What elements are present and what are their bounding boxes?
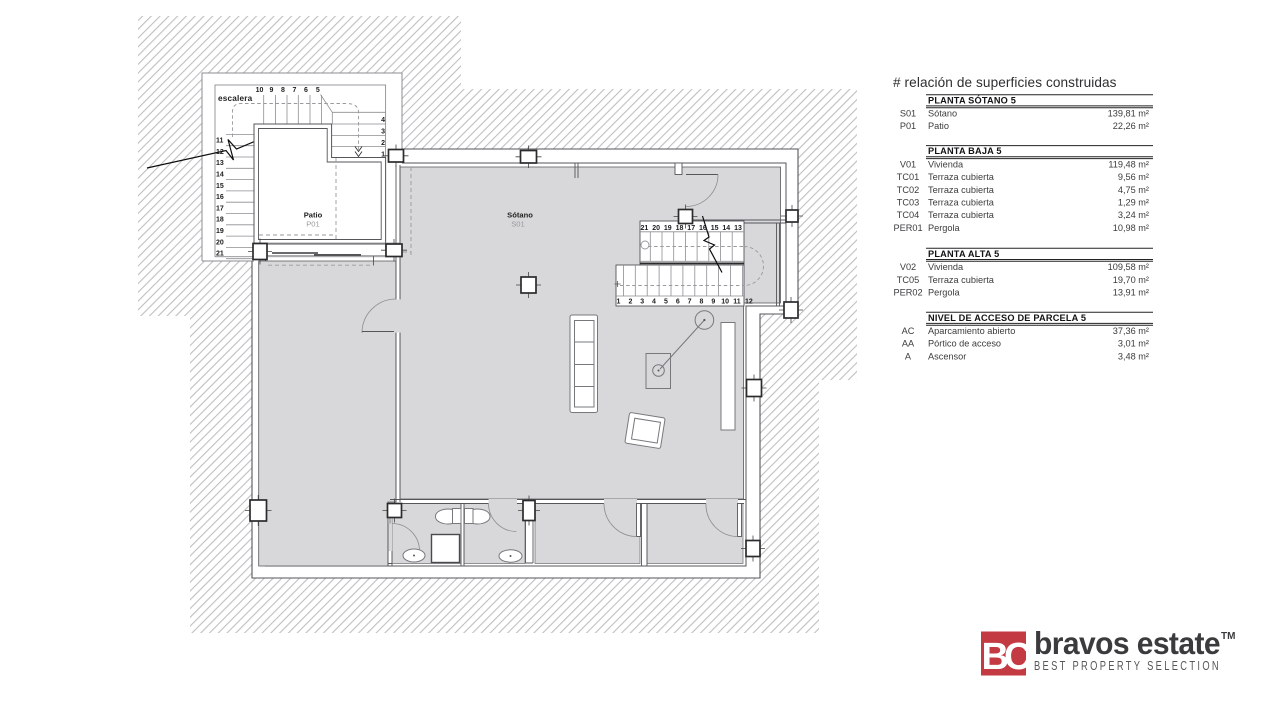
svg-text:S01: S01 [511,220,525,229]
svg-text:4,75 m²: 4,75 m² [1118,185,1149,195]
svg-text:1,29 m²: 1,29 m² [1118,198,1149,208]
svg-text:TC04: TC04 [897,210,919,220]
svg-text:Terraza cubierta: Terraza cubierta [928,275,995,285]
svg-text:22,26 m²: 22,26 m² [1113,121,1149,131]
svg-text:16: 16 [216,194,224,201]
svg-text:TC01: TC01 [897,172,919,182]
svg-text:14: 14 [216,172,224,179]
svg-text:PLANTA SÓTANO 5: PLANTA SÓTANO 5 [928,94,1016,105]
svg-text:bravos estate: bravos estate [1034,625,1220,661]
svg-text:9,56 m²: 9,56 m² [1118,172,1149,182]
svg-text:# relación de superficies cons: # relación de superficies construidas [893,75,1117,90]
svg-text:9: 9 [270,87,274,94]
svg-text:Pergola: Pergola [928,288,961,298]
svg-text:AC: AC [902,326,915,336]
svg-text:8: 8 [281,87,285,94]
svg-text:1: 1 [617,299,621,306]
svg-text:21: 21 [216,251,224,258]
svg-text:AA: AA [902,339,915,349]
svg-text:10,98 m²: 10,98 m² [1113,223,1149,233]
svg-text:TC05: TC05 [897,275,919,285]
svg-text:Sótano: Sótano [507,211,533,220]
svg-text:15: 15 [216,183,224,190]
svg-text:V01: V01 [900,159,916,169]
svg-text:20: 20 [652,225,660,232]
svg-text:8: 8 [700,299,704,306]
svg-text:P01: P01 [306,220,320,229]
svg-text:11: 11 [216,138,224,145]
svg-text:4: 4 [652,299,656,306]
svg-text:TC02: TC02 [897,185,919,195]
svg-text:13: 13 [734,225,742,232]
svg-text:10: 10 [721,299,729,306]
svg-text:PER01: PER01 [893,223,922,233]
svg-text:Terraza cubierta: Terraza cubierta [928,198,995,208]
svg-text:Patio: Patio [928,121,949,131]
svg-text:14: 14 [722,225,730,232]
svg-text:Vivienda: Vivienda [928,262,964,272]
svg-text:NIVEL DE ACCESO DE PARCELA 5: NIVEL DE ACCESO DE PARCELA 5 [928,313,1086,323]
svg-text:Ascensor: Ascensor [928,351,966,361]
svg-text:37,36 m²: 37,36 m² [1113,326,1149,336]
svg-text:7: 7 [688,299,692,306]
svg-text:119,48 m²: 119,48 m² [1108,159,1149,169]
svg-text:BEST PROPERTY SELECTION: BEST PROPERTY SELECTION [1034,658,1221,673]
svg-text:5: 5 [664,299,668,306]
svg-text:6: 6 [304,87,308,94]
svg-text:P01: P01 [900,121,916,131]
svg-text:BC: BC [982,636,1031,678]
svg-text:13: 13 [216,160,224,167]
svg-text:Terraza cubierta: Terraza cubierta [928,172,995,182]
svg-text:Aparcamiento abierto: Aparcamiento abierto [928,326,1015,336]
svg-text:V02: V02 [900,262,916,272]
svg-text:Sótano: Sótano [928,109,957,119]
svg-text:21: 21 [641,225,649,232]
svg-text:3,48 m²: 3,48 m² [1118,351,1149,361]
svg-text:Patio: Patio [304,211,323,220]
svg-text:4: 4 [381,117,385,124]
svg-text:PLANTA ALTA 5: PLANTA ALTA 5 [928,249,1000,259]
svg-text:Pórtico de acceso: Pórtico de acceso [928,339,1001,349]
svg-text:TC03: TC03 [897,198,919,208]
svg-text:7: 7 [293,87,297,94]
svg-text:13,91 m²: 13,91 m² [1113,288,1149,298]
svg-text:17: 17 [216,205,224,212]
svg-text:2: 2 [381,140,385,147]
svg-text:PLANTA BAJA 5: PLANTA BAJA 5 [928,146,1002,156]
svg-text:5: 5 [316,87,320,94]
svg-text:S01: S01 [900,109,916,119]
svg-text:PER02: PER02 [893,288,922,298]
svg-text:139,81 m²: 139,81 m² [1108,109,1149,119]
svg-text:20: 20 [216,239,224,246]
svg-text:12: 12 [745,299,753,306]
svg-text:11: 11 [733,299,741,306]
svg-text:3: 3 [640,299,644,306]
svg-text:18: 18 [676,225,684,232]
svg-text:10: 10 [256,87,264,94]
svg-text:escalera: escalera [218,94,253,103]
svg-text:3: 3 [381,129,385,136]
svg-text:Pergola: Pergola [928,223,961,233]
svg-text:109,58 m²: 109,58 m² [1108,262,1149,272]
svg-text:3,24 m²: 3,24 m² [1118,210,1149,220]
svg-text:A: A [905,351,912,361]
svg-text:19: 19 [216,228,224,235]
svg-text:6: 6 [676,299,680,306]
svg-text:3,01 m²: 3,01 m² [1118,339,1149,349]
svg-text:19: 19 [664,225,672,232]
svg-text:Terraza cubierta: Terraza cubierta [928,210,995,220]
svg-text:Vivienda: Vivienda [928,159,964,169]
svg-text:9: 9 [711,299,715,306]
svg-text:2: 2 [628,299,632,306]
svg-text:TM: TM [1221,631,1235,642]
svg-text:18: 18 [216,217,224,224]
svg-text:Terraza cubierta: Terraza cubierta [928,185,995,195]
svg-text:17: 17 [687,225,695,232]
svg-text:15: 15 [711,225,719,232]
svg-text:19,70 m²: 19,70 m² [1113,275,1149,285]
